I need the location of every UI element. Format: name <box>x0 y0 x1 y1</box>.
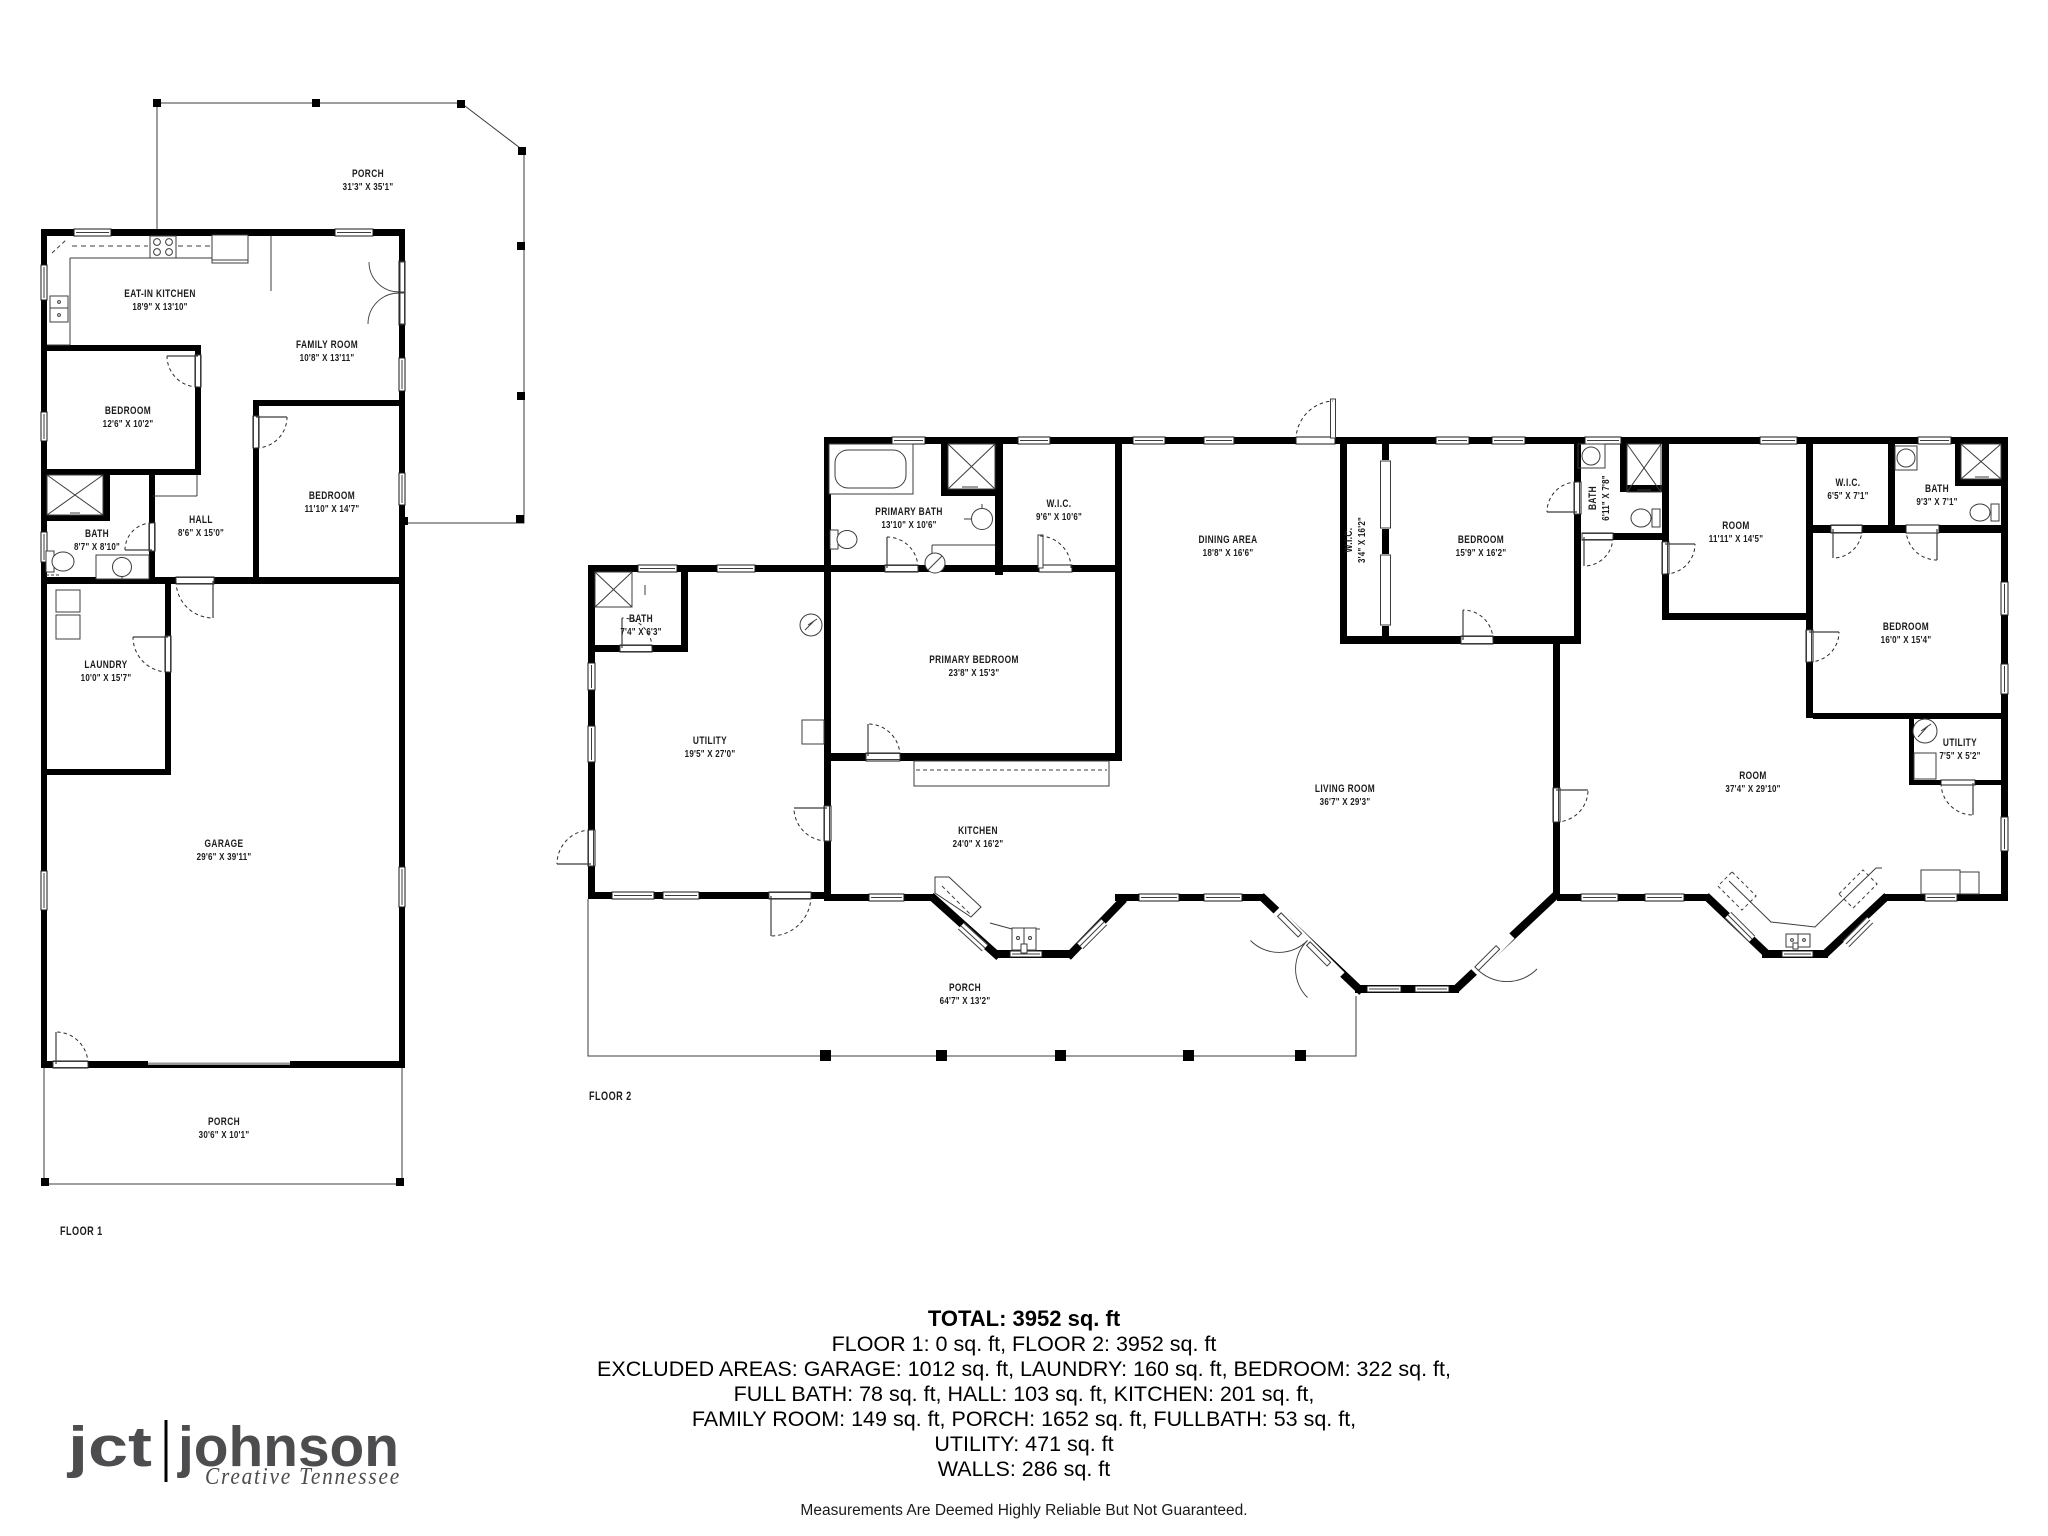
svg-text:BATH: BATH <box>85 528 109 540</box>
svg-text:29'6" X 39'11": 29'6" X 39'11" <box>197 851 252 862</box>
svg-text:Creative Tennessee: Creative Tennessee <box>205 1464 401 1490</box>
svg-text:BATH: BATH <box>629 613 653 625</box>
svg-text:31'3" X 35'1": 31'3" X 35'1" <box>343 181 394 192</box>
svg-text:HALL: HALL <box>189 514 213 526</box>
svg-text:36'7" X 29'3": 36'7" X 29'3" <box>1320 796 1371 807</box>
svg-text:15'9" X 16'2": 15'9" X 16'2" <box>1456 547 1507 558</box>
svg-text:UTILITY: 471 sq. ft: UTILITY: 471 sq. ft <box>934 1432 1113 1456</box>
svg-text:ROOM: ROOM <box>1739 770 1766 782</box>
svg-text:KITCHEN: KITCHEN <box>958 825 998 837</box>
svg-text:64'7" X 13'2": 64'7" X 13'2" <box>940 995 991 1006</box>
svg-text:UTILITY: UTILITY <box>693 735 727 747</box>
svg-text:PORCH: PORCH <box>208 1116 240 1128</box>
svg-text:8'7" X 8'10": 8'7" X 8'10" <box>74 541 120 552</box>
svg-text:Measurements Are Deemed Highly: Measurements Are Deemed Highly Reliable … <box>800 1502 1247 1519</box>
svg-text:W.I.C.: W.I.C. <box>1835 477 1860 489</box>
svg-text:6'5" X 7'1": 6'5" X 7'1" <box>1827 490 1868 501</box>
svg-text:11'11" X 14'5": 11'11" X 14'5" <box>1709 533 1763 544</box>
svg-text:BEDROOM: BEDROOM <box>105 405 151 417</box>
svg-text:16'0" X 15'4": 16'0" X 15'4" <box>1881 634 1932 645</box>
svg-text:FLOOR 2: FLOOR 2 <box>589 1090 632 1104</box>
svg-text:BEDROOM: BEDROOM <box>1883 621 1929 633</box>
svg-text:30'6" X 10'1": 30'6" X 10'1" <box>199 1129 250 1140</box>
svg-text:FULL BATH: 78 sq. ft, HALL: 10: FULL BATH: 78 sq. ft, HALL: 103 sq. ft, … <box>734 1382 1315 1406</box>
svg-text:W.I.C.: W.I.C. <box>1046 498 1071 510</box>
svg-text:BATH: BATH <box>1587 486 1599 510</box>
svg-text:18'9" X 13'10": 18'9" X 13'10" <box>132 301 187 312</box>
svg-text:6'11" X 7'8": 6'11" X 7'8" <box>1600 475 1611 521</box>
svg-text:10'8" X 13'11": 10'8" X 13'11" <box>300 352 355 363</box>
svg-text:EAT-IN KITCHEN: EAT-IN KITCHEN <box>124 288 195 300</box>
svg-text:BEDROOM: BEDROOM <box>1458 534 1504 546</box>
svg-text:FLOOR 1: FLOOR 1 <box>60 1225 103 1239</box>
svg-text:BATH: BATH <box>1925 483 1949 495</box>
svg-text:12'6" X 10'2": 12'6" X 10'2" <box>103 418 154 429</box>
svg-text:LIVING ROOM: LIVING ROOM <box>1315 783 1375 795</box>
svg-text:18'8" X 16'6": 18'8" X 16'6" <box>1203 547 1254 558</box>
svg-text:FAMILY ROOM: FAMILY ROOM <box>296 339 358 351</box>
svg-text:GARAGE: GARAGE <box>205 838 244 850</box>
svg-text:ROOM: ROOM <box>1722 520 1749 532</box>
svg-text:23'8" X 15'3": 23'8" X 15'3" <box>949 667 1000 678</box>
svg-text:BEDROOM: BEDROOM <box>309 490 355 502</box>
svg-text:PRIMARY BEDROOM: PRIMARY BEDROOM <box>929 654 1019 666</box>
svg-text:UTILITY: UTILITY <box>1943 737 1977 749</box>
svg-text:7'4" X 6'3": 7'4" X 6'3" <box>620 626 661 637</box>
svg-text:3'4" X 16'2": 3'4" X 16'2" <box>1356 517 1367 563</box>
svg-text:FAMILY ROOM: 149 sq. ft, PORCH: FAMILY ROOM: 149 sq. ft, PORCH: 1652 sq.… <box>692 1407 1356 1431</box>
svg-text:FLOOR 1: 0 sq. ft, FLOOR 2: 39: FLOOR 1: 0 sq. ft, FLOOR 2: 3952 sq. ft <box>832 1332 1217 1356</box>
svg-text:9'6" X 10'6": 9'6" X 10'6" <box>1036 511 1082 522</box>
svg-text:TOTAL: 3952 sq. ft: TOTAL: 3952 sq. ft <box>928 1306 1121 1331</box>
svg-text:24'0" X 16'2": 24'0" X 16'2" <box>953 838 1004 849</box>
svg-text:DINING AREA: DINING AREA <box>1198 534 1257 546</box>
svg-text:37'4" X 29'10": 37'4" X 29'10" <box>1725 783 1780 794</box>
svg-text:jct: jct <box>67 1415 152 1479</box>
svg-text:19'5" X 27'0": 19'5" X 27'0" <box>685 748 736 759</box>
svg-text:PORCH: PORCH <box>352 168 384 180</box>
svg-text:PORCH: PORCH <box>949 982 981 994</box>
svg-text:11'10" X 14'7": 11'10" X 14'7" <box>305 503 360 514</box>
svg-text:7'5" X 5'2": 7'5" X 5'2" <box>1939 750 1980 761</box>
svg-text:PRIMARY BATH: PRIMARY BATH <box>875 506 942 518</box>
svg-text:WALLS: 286 sq. ft: WALLS: 286 sq. ft <box>938 1457 1111 1481</box>
svg-text:9'3" X 7'1": 9'3" X 7'1" <box>1916 496 1957 507</box>
svg-text:EXCLUDED AREAS: GARAGE: 1012 s: EXCLUDED AREAS: GARAGE: 1012 sq. ft, LAU… <box>597 1357 1451 1381</box>
svg-text:10'0" X 15'7": 10'0" X 15'7" <box>81 672 132 683</box>
svg-text:W.I.C.: W.I.C. <box>1343 527 1355 552</box>
svg-text:13'10" X 10'6": 13'10" X 10'6" <box>881 519 936 530</box>
svg-text:LAUNDRY: LAUNDRY <box>84 659 127 671</box>
svg-text:8'6" X 15'0": 8'6" X 15'0" <box>178 527 224 538</box>
